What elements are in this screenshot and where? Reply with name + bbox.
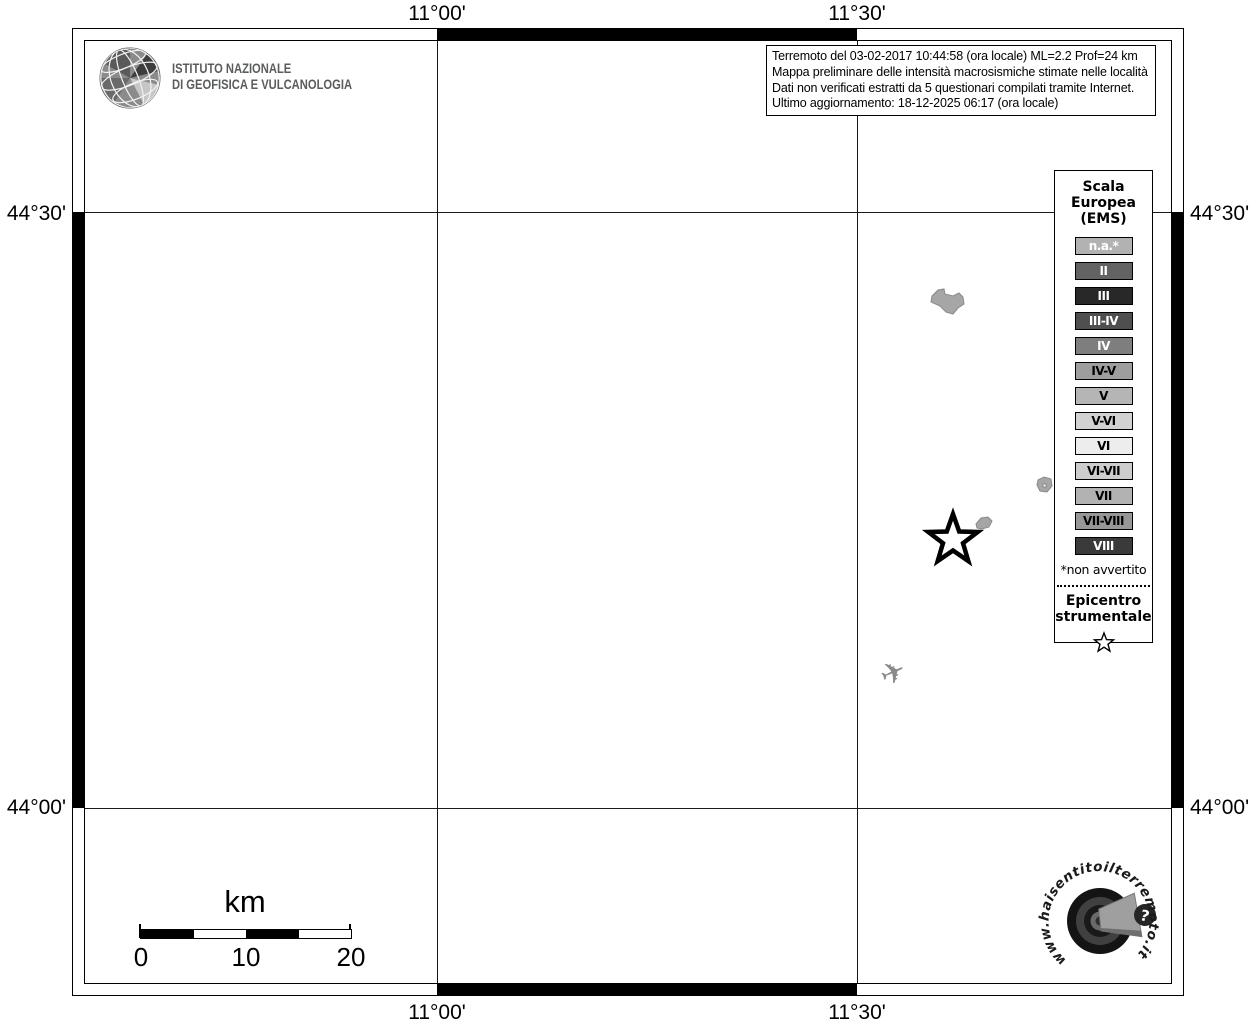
legend-intensity-iv: IV [1075, 337, 1133, 355]
legend-intensity-vii-viii: VII-VIII [1075, 512, 1133, 530]
scalebar [140, 929, 352, 939]
legend-epicenter-star-wrap [1055, 631, 1152, 655]
legend-intensity-vi: VI [1075, 437, 1133, 455]
intensity-legend: Scala Europea (EMS) n.a.* II III III-IV … [1054, 170, 1153, 643]
lon-label-top-left: 11°00' [408, 2, 466, 26]
legend-epicenter-label: Epicentro strumentale [1055, 593, 1152, 625]
scalebar-unit-label: km [200, 884, 290, 920]
frame-tick-band-right [1172, 212, 1183, 808]
legend-intensity-na: n.a.* [1075, 237, 1133, 255]
ingv-name-line1: ISTITUTO NAZIONALE [172, 60, 352, 76]
ingv-logo-text: ISTITUTO NAZIONALE DI GEOFISICA E VULCAN… [172, 60, 352, 92]
info-line-map-type: Mappa preliminare delle intensità macros… [772, 65, 1150, 81]
macroseismic-map-page: 11°00' 11°30' 11°00' 11°30' 44°30' 44°00… [0, 0, 1256, 1024]
info-line-data-source: Dati non verificati estratti da 5 questi… [772, 81, 1150, 97]
lon-label-bottom-left: 11°00' [408, 1001, 466, 1024]
legend-intensity-vi-vii: VI-VII [1075, 462, 1133, 480]
frame-tick-band-left [73, 212, 84, 808]
legend-title: Scala Europea (EMS) [1055, 179, 1152, 227]
legend-intensity-v: V [1075, 387, 1133, 405]
scalebar-num-0: 0 [134, 942, 148, 973]
legend-intensity-iii-iv: III-IV [1075, 312, 1133, 330]
legend-intensity-vii: VII [1075, 487, 1133, 505]
lat-label-right-bottom: 44°00' [1190, 796, 1249, 820]
map-frame-inner [84, 40, 1172, 984]
info-line-updated: Ultimo aggiornamento: 18-12-2025 06:17 (… [772, 96, 1150, 112]
scalebar-seg-2 [194, 930, 247, 938]
legend-intensity-viii: VIII [1075, 537, 1133, 555]
lat-label-left-bottom: 44°00' [0, 796, 66, 820]
legend-intensity-iii: III [1075, 287, 1133, 305]
gridline-lon-11-00 [437, 41, 438, 983]
legend-intensity-iv-v: IV-V [1075, 362, 1133, 380]
frame-tick-band-bottom [437, 984, 857, 995]
legend-items: n.a.* II III III-IV IV IV-V V V-VI VI VI… [1055, 237, 1152, 555]
legend-title-line1: Scala [1055, 179, 1152, 195]
legend-epicenter-line1: Epicentro [1055, 593, 1152, 609]
lat-label-left-top: 44°30' [0, 202, 66, 226]
scalebar-seg-1 [141, 930, 194, 938]
scalebar-num-20: 20 [337, 942, 366, 973]
earthquake-info-box: Terremoto del 03-02-2017 10:44:58 (ora l… [766, 45, 1156, 116]
gridline-lat-44-30 [85, 212, 1171, 213]
scalebar-seg-4 [299, 930, 352, 938]
epicenter-star-icon [1091, 631, 1117, 655]
lat-label-right-top: 44°30' [1190, 202, 1249, 226]
frame-tick-band-top [437, 29, 857, 40]
gridline-lon-11-30 [857, 41, 858, 983]
info-line-event: Terremoto del 03-02-2017 10:44:58 (ora l… [772, 49, 1150, 65]
lon-label-bottom-right: 11°30' [828, 1001, 886, 1024]
legend-epicenter-line2: strumentale [1055, 609, 1152, 625]
lon-label-top-right: 11°30' [828, 2, 886, 26]
legend-title-line2: Europea [1055, 195, 1152, 211]
scalebar-seg-3 [246, 930, 299, 938]
legend-footnote: *non avvertito [1055, 562, 1152, 577]
legend-intensity-ii: II [1075, 262, 1133, 280]
gridline-lat-44-00 [85, 808, 1171, 809]
legend-title-line3: (EMS) [1055, 211, 1152, 227]
legend-intensity-v-vi: V-VI [1075, 412, 1133, 430]
scalebar-num-10: 10 [232, 942, 261, 973]
ingv-name-line2: DI GEOFISICA E VULCANOLOGIA [172, 76, 352, 92]
legend-separator [1057, 585, 1150, 587]
